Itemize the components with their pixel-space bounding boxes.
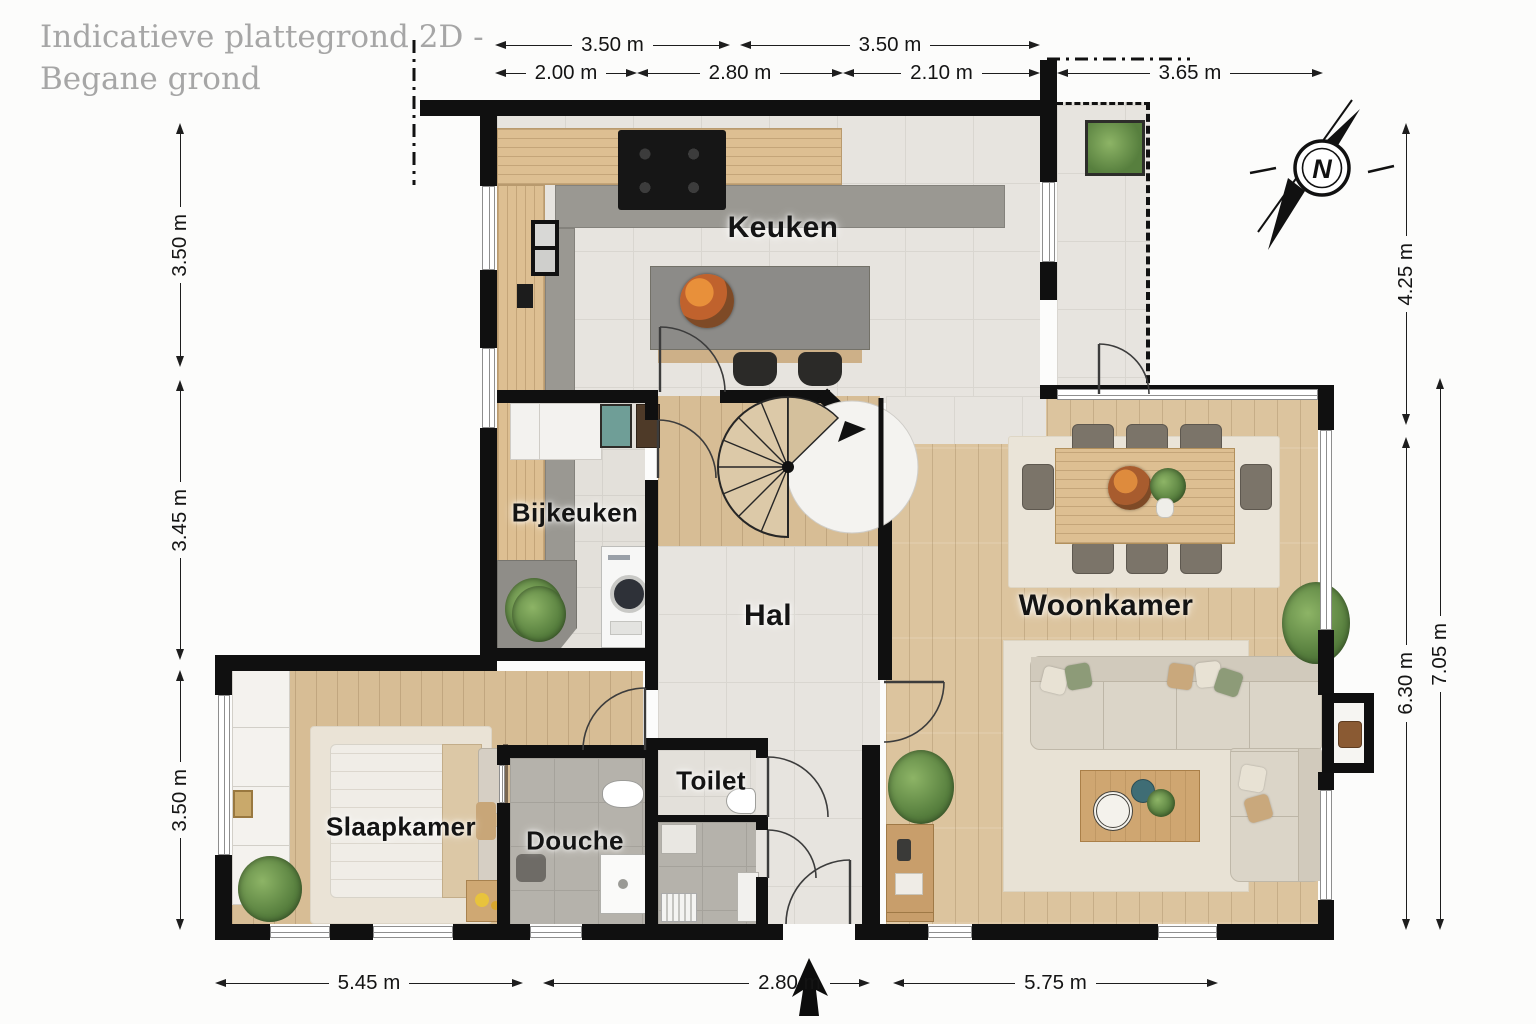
window <box>482 348 495 428</box>
window <box>1158 926 1217 938</box>
wall-art <box>600 404 632 448</box>
room-label-toilet: Toilet <box>676 766 746 797</box>
shower-fixture <box>516 854 546 882</box>
fireplace-niche <box>1322 693 1374 773</box>
dimension-line: 4.25 m <box>1394 123 1418 425</box>
wall-segment <box>420 100 1057 116</box>
clock <box>1093 791 1133 831</box>
room-label-slaapkamer: Slaapkamer <box>326 812 476 843</box>
wall-switch <box>517 284 533 308</box>
dining-chair <box>1240 464 1272 510</box>
dining-chair <box>1126 540 1168 574</box>
dimension-label: 7.05 m <box>1428 616 1452 693</box>
window <box>373 926 453 938</box>
dimension-line: 3.50 m <box>740 33 1040 57</box>
bedroom-plant <box>238 856 302 922</box>
dimension-line: 6.30 m <box>1394 437 1418 930</box>
wall-segment <box>497 648 658 661</box>
dimension-line: 2.10 m <box>843 61 1040 85</box>
wall-segment <box>756 815 768 830</box>
washing-machine <box>601 546 647 648</box>
window <box>482 186 495 270</box>
wall-segment <box>645 480 658 661</box>
hal-wood-floor <box>658 396 880 546</box>
room-label-keuken: Keuken <box>728 211 839 245</box>
wall-segment <box>855 924 928 940</box>
window <box>270 926 330 938</box>
utility-cabinet <box>510 403 602 460</box>
dimension-line: 5.75 m <box>893 971 1218 995</box>
dimension-label: 3.50 m <box>572 33 653 57</box>
wall-segment <box>215 655 497 671</box>
dimension-label: 3.45 m <box>168 482 192 559</box>
wall-segment <box>505 745 658 758</box>
dimension-line: 3.50 m <box>168 123 192 367</box>
dimension-label: 5.75 m <box>1015 971 1096 995</box>
room-label-hal: Hal <box>744 599 792 633</box>
table-vase <box>1156 498 1174 518</box>
wall-segment <box>1040 60 1057 182</box>
wall-segment <box>215 924 270 940</box>
oven-stack <box>531 220 559 276</box>
room-label-douche: Douche <box>526 826 624 857</box>
wall-segment <box>645 390 658 420</box>
dimension-line: 3.45 m <box>168 380 192 660</box>
wall-segment <box>497 803 510 924</box>
utility-plant <box>512 586 566 642</box>
title-line-2: Begane grond <box>40 58 510 100</box>
title-line-1: Indicatieve plattegrond 2D - <box>40 16 510 58</box>
bar-stool <box>798 352 842 386</box>
wall-segment <box>480 116 497 186</box>
firewood <box>1338 721 1362 748</box>
wall-segment <box>878 448 892 680</box>
floor-plan-canvas: Indicatieve plattegrond 2D - Begane gron… <box>0 0 1536 1024</box>
radiator <box>661 893 697 922</box>
wall-mirror <box>233 790 253 818</box>
window <box>218 695 230 855</box>
wall-segment <box>649 815 756 822</box>
wall-segment <box>1040 262 1057 300</box>
wall-segment <box>497 390 657 403</box>
tech-sink <box>661 824 697 854</box>
dimension-label: 3.65 m <box>1150 61 1231 85</box>
window <box>1320 790 1332 900</box>
wall-segment <box>330 924 373 940</box>
dimension-label: 2.00 m <box>526 61 607 85</box>
room-label-woonkamer: Woonkamer <box>1019 589 1194 623</box>
dimension-label: 6.30 m <box>1394 645 1418 722</box>
dining-chair <box>1180 540 1222 574</box>
wall-segment <box>1217 924 1333 940</box>
wall-segment <box>480 428 497 661</box>
dimension-label: 2.80 m <box>749 971 830 995</box>
compass-north-label: N <box>1312 154 1332 184</box>
dining-chair <box>1072 540 1114 574</box>
window <box>530 926 582 938</box>
table-fruit-bowl <box>1108 466 1152 510</box>
coffee-table <box>1080 770 1200 842</box>
bar-stool <box>733 352 777 386</box>
wall-segment <box>972 924 1158 940</box>
wall-segment <box>1318 900 1334 940</box>
window <box>928 926 972 938</box>
wall-segment <box>756 877 768 924</box>
dimension-line: 2.80 m <box>543 971 870 995</box>
dimension-label: 3.50 m <box>850 33 931 57</box>
terrace-planter <box>1085 120 1145 176</box>
wall-segment <box>1318 385 1334 430</box>
wall-segment <box>582 924 783 940</box>
window <box>1057 389 1318 400</box>
fruit-bowl <box>680 274 734 328</box>
console-table <box>886 824 934 922</box>
dimension-label: 2.80 m <box>700 61 781 85</box>
wall-segment <box>645 738 768 750</box>
window <box>499 765 505 803</box>
dimension-line: 2.80 m <box>637 61 843 85</box>
wall-segment <box>480 270 497 348</box>
dimension-line: 3.65 m <box>1057 61 1323 85</box>
dimension-line: 3.50 m <box>495 33 730 57</box>
wall-segment <box>720 390 830 403</box>
compass: N <box>1250 100 1394 250</box>
dimension-label: 4.25 m <box>1394 236 1418 313</box>
wall-segment <box>453 924 530 940</box>
dimension-line: 2.00 m <box>495 61 637 85</box>
wall-segment <box>645 661 658 690</box>
sofa-pillow <box>1064 662 1093 691</box>
dimension-line: 3.50 m <box>168 670 192 930</box>
wall-segment <box>756 738 768 758</box>
wall-segment <box>1318 772 1334 790</box>
wall-segment <box>862 745 880 924</box>
cooktop <box>618 130 726 210</box>
dimension-label: 3.50 m <box>168 762 192 839</box>
shower-tray <box>600 854 646 914</box>
dimension-label: 5.45 m <box>329 971 410 995</box>
dimension-line: 7.05 m <box>1428 378 1452 930</box>
wall-segment <box>645 750 658 924</box>
dining-chair <box>1022 464 1054 510</box>
room-label-bijkeuken: Bijkeuken <box>512 498 638 529</box>
dimension-label: 2.10 m <box>901 61 982 85</box>
sofa-pillow <box>1238 764 1267 793</box>
living-plant <box>1282 582 1350 664</box>
dimension-label: 3.50 m <box>168 207 192 284</box>
bathroom-sink <box>602 780 644 808</box>
window <box>1320 430 1332 630</box>
window <box>1042 182 1055 262</box>
sofa-pillow <box>1166 662 1194 690</box>
dimension-line: 5.45 m <box>215 971 523 995</box>
wall-segment <box>215 655 232 695</box>
hall-plant <box>888 750 954 824</box>
page-title: Indicatieve plattegrond 2D - Begane gron… <box>40 16 510 100</box>
wall-segment <box>1318 630 1334 695</box>
